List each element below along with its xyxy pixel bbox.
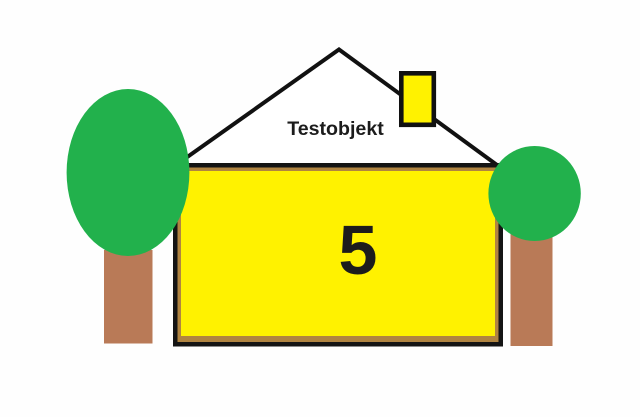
svg-text:Testobjekt: Testobjekt [287, 118, 384, 140]
svg-text:5: 5 [339, 211, 378, 289]
